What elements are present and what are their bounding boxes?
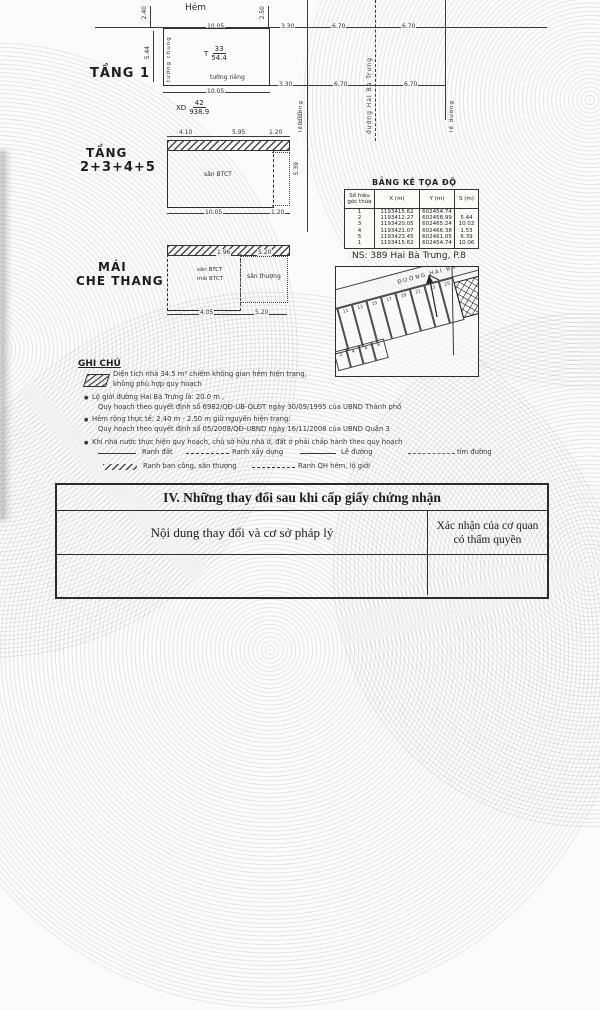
- changes-col-left-header: Nội dung thay đổi và cơ sở pháp lý: [57, 511, 428, 554]
- map-rotated-group: ĐƯỜNG HAI BÀ TRƯNG 9 11 13 15 17 19 21 2…: [335, 266, 479, 377]
- right-header-line1: Xác nhận của cơ quan: [437, 519, 539, 533]
- notes-hatch-text1: Diện tích nhà 34.5 m² chiếm không gian h…: [113, 370, 307, 378]
- xd-area: 938.9: [189, 108, 209, 116]
- changes-section-table: IV. Những thay đổi sau khi cấp giấy chứn…: [55, 483, 549, 599]
- dim-label: 2.40: [141, 6, 148, 19]
- dim-label: 6.70: [403, 81, 418, 88]
- notes-bullet2b: Quy hoạch theo quyết định số 05/2008/QĐ-…: [98, 425, 390, 433]
- floor1-lot-fraction: T 3354.4: [204, 45, 227, 62]
- drawing-layer: Hẻm 2.40 2.50 10.05 3.30 6.70 6.70 TẦNG …: [0, 0, 600, 600]
- changes-col-right-header: Xác nhận của cơ quan có thẩm quyền: [428, 511, 547, 554]
- dim-label: 0.70: [297, 112, 304, 125]
- coord-cell: 602454.74: [420, 240, 455, 248]
- notes-bullet3: Khi nhà nước thực hiện quy hoạch, chủ sở…: [92, 438, 402, 446]
- roof-title-line1: MÁI: [98, 260, 127, 274]
- floor1-left-wall-label: tường chung: [166, 38, 172, 82]
- address-line: NS: 389 Hai Bà Trưng, P.8: [352, 251, 466, 261]
- legend-label: Ranh QH hẻm, lộ giới: [298, 462, 370, 470]
- dim-label: 10.05: [204, 209, 223, 216]
- notes-bullet2: Hẻm rộng thực tế: 2.40 m - 2.50 m giữ ng…: [92, 415, 291, 423]
- scanned-land-survey-document: { "labels": { "hem": "Hẻm", "tang1": "TẦ…: [0, 0, 600, 600]
- lot-number: 33: [213, 45, 226, 54]
- alley-label: Hẻm: [185, 3, 206, 13]
- dim-label: 10.05: [206, 88, 225, 95]
- lot-area: 54.4: [211, 54, 227, 62]
- xd-number: 42: [193, 99, 206, 108]
- legend-label: Ranh đất: [142, 448, 173, 456]
- dim-label: 3.30: [278, 81, 293, 88]
- bullet-dot: ●: [84, 439, 88, 447]
- dim-label: 5.44: [144, 46, 151, 59]
- notes-title: GHI CHÚ: [78, 359, 121, 369]
- coord-cell: 1: [345, 240, 375, 248]
- floors2345-title-line2: 2+3+4+5: [80, 160, 156, 175]
- legend-label: Lề đường: [341, 448, 373, 456]
- dim-label: 1.96: [216, 249, 231, 256]
- dim-label: 6.70: [333, 81, 348, 88]
- coord-col-header: X (m): [375, 190, 420, 209]
- legend-line-dashed: [186, 453, 229, 454]
- dim-label: 1.20: [270, 209, 285, 216]
- dim-line: [153, 31, 154, 82]
- legend-line-thin: [300, 453, 336, 454]
- legend-label: Ranh xây dựng: [232, 448, 283, 456]
- legend-hatch-sample: [103, 464, 137, 470]
- coord-cell: 1193415.62: [375, 240, 420, 248]
- lot-prefix: T: [204, 50, 208, 58]
- notes-bullet1b: Quy hoạch theo quyết định số 6982/QĐ-UB-…: [98, 403, 401, 411]
- curb-near-label: lề đường: [298, 90, 304, 132]
- legend-line-solid: [98, 453, 136, 454]
- bullet-dot: ●: [84, 394, 88, 402]
- construction-fraction: XD 42938.9: [176, 99, 209, 116]
- curb-line-far: [445, 0, 446, 120]
- dim-chain-2: [270, 85, 445, 86]
- dim-label: 5.39: [293, 162, 300, 175]
- bullet-dot: ●: [84, 416, 88, 424]
- dim-label: 3.30: [280, 23, 295, 30]
- floors2345-plan: [167, 149, 274, 208]
- roof-terrace-label: sân thượng: [247, 273, 281, 280]
- coord-col-header: Y (m): [420, 190, 455, 209]
- roof-left-room: [167, 254, 241, 311]
- dim-label: 5.20: [257, 249, 272, 256]
- dim-tick: [150, 6, 151, 27]
- dim-label: 6.70: [401, 23, 416, 30]
- dim-label: 4.05: [199, 309, 214, 316]
- street-centerline: [375, 0, 376, 141]
- dim-label: 5.20: [254, 309, 269, 316]
- location-inset-map: ĐƯỜNG HAI BÀ TRƯNG 9 11 13 15 17 19 21 2…: [335, 266, 479, 377]
- street-axis-label: đường Hai Bà Trưng: [366, 42, 373, 134]
- notes-bullet1: Lộ giới đường Hai Bà Trưng là: 20.0 m ,: [92, 393, 224, 401]
- legend-label: tim đường: [457, 448, 492, 456]
- roof-title-line2: CHE THANG: [76, 274, 164, 288]
- changes-empty-cell-right: [428, 555, 547, 595]
- dim-label: 5.95: [231, 129, 246, 136]
- dim-line: [167, 136, 290, 137]
- right-header-line2: có thẩm quyền: [454, 533, 522, 547]
- curb-line-near: [307, 0, 308, 232]
- legend-label: Ranh ban công, sân thượng: [143, 462, 237, 470]
- legend-line-centerline: [408, 453, 455, 454]
- roof-left-label1: sân BTCT: [197, 267, 222, 273]
- dim-label: 1.20: [268, 129, 283, 136]
- north-arrow-icon: [422, 269, 446, 321]
- floor1-title: TẦNG 1: [90, 66, 150, 81]
- dim-label: 6.70: [331, 23, 346, 30]
- roof-left-label2: mái BTCT: [197, 276, 223, 282]
- curb-far-label: lề đường: [449, 90, 455, 132]
- coord-col-header: S (m): [455, 190, 478, 209]
- xd-prefix: XD: [176, 104, 186, 112]
- changes-section-title: IV. Những thay đổi sau khi cấp giấy chứn…: [57, 485, 547, 511]
- floors2345-title-line1: TẦNG: [86, 146, 127, 160]
- floors2345-terrace-ext: [272, 152, 290, 206]
- notes-hatch-swatch: [83, 374, 110, 387]
- coord-table-title: BẢNG KÊ TỌA ĐỘ: [372, 178, 457, 187]
- dim-label: 2.50: [259, 6, 266, 19]
- dim-tick: [268, 6, 269, 27]
- notes-hatch-text2: không phù hợp quy hoạch: [113, 380, 202, 388]
- floors2345-inside-label: sân BTCT: [204, 171, 232, 178]
- legend-line-qh: [252, 467, 295, 468]
- floor1-bottom-wall-label: tường riêng: [210, 74, 245, 81]
- coord-cell: 10.06: [455, 240, 478, 248]
- dim-label: 4.10: [178, 129, 193, 136]
- coord-table: Số hiệu góc thửa X (m) Y (m) S (m) 1 119…: [344, 189, 479, 249]
- changes-empty-cell-left: [57, 555, 428, 595]
- coord-col-header: Số hiệu góc thửa: [345, 190, 375, 209]
